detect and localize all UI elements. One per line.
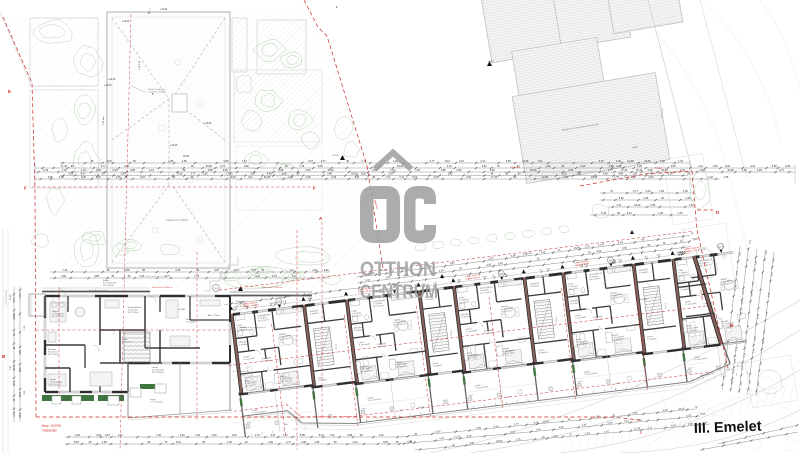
- svg-text:OTTHON: OTTHON: [360, 258, 436, 281]
- svg-text:6,07: 6,07: [511, 430, 517, 433]
- svg-text:17,43: 17,43: [61, 165, 68, 168]
- svg-text:3,11: 3,11: [617, 204, 622, 207]
- svg-text:2,00: 2,00: [433, 176, 438, 179]
- svg-text:33,60: 33,60: [206, 165, 213, 168]
- svg-text:33,60: 33,60: [678, 407, 685, 411]
- svg-text:3,11: 3,11: [538, 160, 543, 163]
- svg-text:+10,03: +10,03: [640, 299, 648, 301]
- svg-text:1,05: 1,05: [102, 441, 107, 444]
- svg-text:33,60: 33,60: [728, 169, 735, 172]
- svg-text:2,00: 2,00: [61, 275, 66, 278]
- svg-text:F: F: [313, 186, 316, 191]
- svg-text:2,35: 2,35: [113, 169, 118, 172]
- svg-text:6,10: 6,10: [140, 176, 145, 179]
- svg-text:12,38: 12,38: [627, 160, 634, 163]
- svg-text:1,40: 1,40: [658, 212, 663, 215]
- svg-text:2,77: 2,77: [608, 169, 613, 172]
- svg-text:6,10: 6,10: [96, 176, 101, 179]
- svg-text:5,26: 5,26: [619, 197, 624, 200]
- svg-text:Lépcső: Lépcső: [665, 303, 667, 309]
- svg-text:3,11: 3,11: [480, 160, 485, 163]
- svg-text:7,12: 7,12: [242, 160, 247, 163]
- svg-text:6,10: 6,10: [599, 160, 604, 163]
- svg-text:1,62: 1,62: [244, 165, 249, 168]
- svg-text:5: 5: [640, 431, 642, 435]
- svg-text:1,40: 1,40: [379, 434, 384, 437]
- svg-text:2,28: 2,28: [643, 197, 648, 200]
- svg-text:5,05: 5,05: [318, 165, 323, 168]
- svg-text:6,07: 6,07: [440, 437, 446, 440]
- svg-text:P: kerámia: P: kerámia: [122, 342, 132, 344]
- svg-text:+10,30: +10,30: [596, 356, 604, 358]
- svg-text:2,28: 2,28: [467, 435, 473, 438]
- svg-text:+12,33: +12,33: [108, 78, 116, 81]
- svg-text:1,50: 1,50: [689, 204, 694, 207]
- svg-text:33,60: 33,60: [496, 440, 503, 444]
- svg-text:+12,97: +12,97: [332, 155, 340, 157]
- svg-text:5,05: 5,05: [18, 413, 21, 418]
- svg-text:5,05: 5,05: [383, 441, 388, 444]
- svg-text:5,26: 5,26: [361, 173, 366, 176]
- svg-text:1,62: 1,62: [482, 165, 487, 168]
- svg-text:3,40: 3,40: [353, 441, 358, 444]
- svg-text:+10,30: +10,30: [418, 407, 426, 409]
- svg-text:1,50: 1,50: [563, 176, 568, 179]
- svg-text:1,75: 1,75: [255, 434, 260, 437]
- svg-text:2,00: 2,00: [649, 176, 654, 179]
- svg-text:1,05: 1,05: [723, 176, 728, 179]
- svg-text:CENTRUM: CENTRUM: [360, 282, 438, 303]
- svg-text:4,58: 4,58: [603, 173, 608, 176]
- svg-text:33,60: 33,60: [183, 155, 190, 158]
- svg-text:P: lam.parkett: P: lam.parkett: [52, 313, 65, 316]
- svg-text:2,28: 2,28: [686, 197, 691, 200]
- svg-text:1,75: 1,75: [677, 212, 682, 215]
- svg-text:2,77: 2,77: [165, 275, 170, 278]
- svg-text:6,10: 6,10: [601, 212, 606, 215]
- svg-text:2,90: 2,90: [124, 165, 129, 168]
- svg-text:Konyha/Étkező: Konyha/Étkező: [128, 306, 142, 309]
- svg-text:3,11: 3,11: [248, 176, 253, 179]
- svg-text:+12,61: +12,61: [160, 8, 168, 11]
- svg-text:6,07: 6,07: [105, 434, 110, 437]
- svg-text:1,50: 1,50: [683, 190, 688, 193]
- svg-text:3,40: 3,40: [212, 434, 217, 437]
- svg-text:7,12: 7,12: [330, 434, 335, 437]
- svg-text:1,30: 1,30: [195, 434, 200, 437]
- svg-text:4,02: 4,02: [660, 160, 665, 163]
- svg-text:1,62: 1,62: [448, 173, 453, 176]
- svg-text:P: csm.kerámia: P: csm.kerámia: [150, 401, 164, 404]
- svg-text:Palaht csatlakozóra: Palaht csatlakozóra: [148, 88, 166, 91]
- svg-text:4,10: 4,10: [459, 160, 464, 163]
- svg-text:3,45: 3,45: [282, 173, 287, 176]
- svg-text:4,58: 4,58: [609, 165, 614, 168]
- svg-text:WT: 2,80 m²: WT: 2,80 m²: [48, 353, 59, 356]
- svg-text:1,50: 1,50: [576, 173, 581, 176]
- svg-text:Lépcső: Lépcső: [556, 317, 558, 323]
- svg-text:E: E: [8, 89, 11, 94]
- svg-text:1,10: 1,10: [62, 169, 67, 172]
- svg-text:16,49: 16,49: [644, 160, 651, 163]
- svg-text:4,58: 4,58: [125, 269, 130, 272]
- svg-text:60: 60: [492, 275, 494, 277]
- svg-text:3,95: 3,95: [94, 275, 99, 278]
- svg-text:+7,96: +7,96: [700, 249, 706, 251]
- svg-text:16,49: 16,49: [530, 169, 537, 172]
- svg-text:2,35: 2,35: [182, 160, 187, 163]
- svg-text:1,40: 1,40: [637, 165, 642, 168]
- svg-text:1,10: 1,10: [18, 293, 21, 298]
- svg-text:33,60: 33,60: [12, 313, 15, 320]
- svg-text:3,37: 3,37: [686, 414, 692, 417]
- svg-text:2,28: 2,28: [616, 165, 621, 168]
- svg-text:2,00: 2,00: [435, 430, 441, 434]
- svg-text:3,95: 3,95: [18, 367, 21, 372]
- svg-text:1,10: 1,10: [447, 165, 452, 168]
- svg-text:16,49: 16,49: [591, 176, 598, 179]
- svg-text:4,02: 4,02: [75, 434, 80, 437]
- svg-text:2,28: 2,28: [700, 169, 705, 172]
- svg-text:3,45: 3,45: [48, 176, 53, 179]
- svg-text:20: 20: [645, 256, 647, 258]
- svg-text:1,05: 1,05: [659, 190, 664, 193]
- svg-text:2,77: 2,77: [220, 165, 225, 168]
- svg-text:+12,50: +12,50: [104, 84, 112, 87]
- svg-text:2,77: 2,77: [101, 165, 106, 168]
- svg-text:3,11: 3,11: [18, 350, 21, 355]
- svg-text:4,10: 4,10: [750, 165, 755, 168]
- svg-text:3,11: 3,11: [698, 165, 703, 168]
- svg-text:6,07: 6,07: [12, 412, 15, 417]
- svg-text:Hrsz.: 6173/9: Hrsz.: 6173/9: [42, 424, 61, 428]
- svg-text:12,38: 12,38: [542, 176, 549, 179]
- svg-text:Piros vonal: 75x20 cm: Piros vonal: 75x20 cm: [152, 286, 173, 289]
- svg-text:7,12: 7,12: [399, 176, 404, 179]
- svg-text:2,77: 2,77: [321, 160, 326, 163]
- svg-text:2,35: 2,35: [650, 204, 655, 207]
- svg-text:2,35: 2,35: [469, 442, 475, 445]
- svg-text:Piros vonal: 75x20 cm: Piros vonal: 75x20 cm: [262, 286, 283, 289]
- svg-text:3,11: 3,11: [637, 419, 643, 422]
- svg-text:5,26: 5,26: [74, 441, 79, 444]
- svg-text:4,58: 4,58: [671, 165, 676, 168]
- svg-text:4,58: 4,58: [130, 169, 135, 172]
- svg-text:4,58: 4,58: [618, 173, 623, 176]
- svg-text:16,49: 16,49: [12, 364, 15, 371]
- svg-text:P: kerámia: P: kerámia: [186, 322, 196, 324]
- svg-text:3,45: 3,45: [568, 169, 573, 172]
- svg-text:5,26: 5,26: [607, 421, 613, 424]
- svg-text:3,11: 3,11: [118, 434, 123, 437]
- svg-text:1,50: 1,50: [546, 165, 551, 168]
- svg-text:1,62: 1,62: [604, 430, 610, 433]
- svg-text:2,77: 2,77: [633, 190, 638, 193]
- svg-text:1,40: 1,40: [180, 434, 185, 437]
- svg-text:2,90: 2,90: [476, 426, 482, 430]
- svg-text:4,02: 4,02: [96, 434, 101, 437]
- svg-text:6,10: 6,10: [580, 165, 585, 168]
- svg-text:4,58: 4,58: [441, 169, 446, 172]
- svg-text:1,10: 1,10: [43, 169, 48, 172]
- svg-text:1,10: 1,10: [272, 275, 277, 278]
- svg-text:3,11: 3,11: [647, 426, 653, 429]
- svg-text:1,25 5,25: 1,25 5,25: [139, 60, 141, 70]
- svg-text:Félintenzív zöldtető: Félintenzív zöldtető: [166, 218, 189, 222]
- svg-text:Telekhatár: Telekhatár: [510, 166, 520, 169]
- svg-text:3,95: 3,95: [700, 412, 706, 415]
- svg-text:F: F: [24, 186, 27, 191]
- svg-text:6,07: 6,07: [308, 160, 313, 163]
- svg-text:2,28: 2,28: [305, 176, 310, 179]
- svg-text:3,37: 3,37: [255, 275, 260, 278]
- svg-text:2,28: 2,28: [785, 165, 790, 168]
- svg-text:+12,44: +12,44: [122, 20, 130, 23]
- svg-text:2,00: 2,00: [231, 176, 236, 179]
- svg-text:1,10: 1,10: [708, 176, 713, 179]
- svg-text:2,00: 2,00: [12, 297, 15, 302]
- svg-text:3,95: 3,95: [506, 160, 511, 163]
- svg-text:1,62: 1,62: [415, 169, 420, 172]
- svg-text:5,05: 5,05: [300, 434, 305, 437]
- svg-text:33,60: 33,60: [397, 165, 404, 168]
- svg-text:1,05: 1,05: [713, 165, 718, 168]
- svg-text:5,26: 5,26: [81, 176, 86, 179]
- svg-text:Lépcső: Lépcső: [335, 344, 337, 350]
- svg-text:6,07: 6,07: [271, 434, 276, 437]
- svg-text:2,00: 2,00: [68, 173, 73, 176]
- svg-text:2,28: 2,28: [175, 269, 180, 272]
- svg-text:7,12: 7,12: [385, 176, 390, 179]
- svg-text:Társasház: Társasház: [42, 429, 57, 433]
- svg-text:7,12: 7,12: [624, 420, 630, 423]
- svg-text:2,90: 2,90: [457, 169, 462, 172]
- svg-text:1,30: 1,30: [632, 411, 638, 415]
- svg-text:3,37: 3,37: [292, 275, 297, 278]
- svg-text:+12,03: +12,03: [204, 122, 212, 125]
- svg-text:WT: 5,82 m²: WT: 5,82 m²: [128, 311, 139, 314]
- svg-text:4,02: 4,02: [559, 426, 565, 429]
- svg-text:8,10: 8,10: [445, 160, 450, 163]
- svg-text:12,38: 12,38: [264, 176, 271, 179]
- svg-text:1,30: 1,30: [331, 176, 336, 179]
- svg-text:+10,44 Bört szél láve: +10,44 Bört szél láve: [88, 289, 108, 292]
- svg-text:3,37: 3,37: [214, 269, 219, 272]
- svg-text:6,10: 6,10: [176, 441, 181, 444]
- svg-text:2,90: 2,90: [301, 441, 306, 444]
- svg-text:1,30: 1,30: [725, 165, 730, 168]
- svg-text:2,90: 2,90: [324, 269, 329, 272]
- svg-text:2,28: 2,28: [757, 169, 762, 172]
- svg-text:7,12: 7,12: [62, 269, 67, 272]
- svg-text:4,02: 4,02: [466, 176, 471, 179]
- svg-text:4,58: 4,58: [208, 169, 213, 172]
- svg-text:6,10: 6,10: [553, 435, 559, 438]
- svg-text:7,12: 7,12: [299, 165, 304, 168]
- svg-text:75: 75: [539, 269, 541, 271]
- svg-text:árnyékoló szerkezet: árnyékoló szerkezet: [148, 91, 166, 94]
- svg-text:1,30: 1,30: [203, 173, 208, 176]
- svg-text:1,50: 1,50: [59, 176, 64, 179]
- svg-text:2,77: 2,77: [514, 423, 520, 427]
- svg-text:5,26: 5,26: [671, 424, 677, 427]
- svg-text:6,07: 6,07: [412, 176, 417, 179]
- svg-text:Lépcső: Lépcső: [451, 330, 453, 336]
- svg-text:3,11: 3,11: [289, 269, 294, 272]
- svg-text:1,62: 1,62: [536, 428, 542, 431]
- svg-text:5,05: 5,05: [107, 160, 112, 163]
- svg-text:2,35: 2,35: [116, 176, 121, 179]
- svg-text:5,05: 5,05: [224, 160, 229, 163]
- svg-text:3,11: 3,11: [355, 176, 360, 179]
- svg-text:WT: 10,50 m²: WT: 10,50 m²: [152, 371, 164, 374]
- svg-text:1,10: 1,10: [149, 169, 154, 172]
- svg-text:1,10: 1,10: [585, 432, 591, 435]
- svg-text:Tűzfal: Tűzfal: [655, 167, 662, 170]
- svg-text:1,75: 1,75: [614, 176, 619, 179]
- svg-text:2,90: 2,90: [306, 169, 311, 172]
- svg-text:1,30: 1,30: [678, 160, 683, 163]
- svg-text:20: 20: [504, 274, 506, 276]
- svg-text:4,10: 4,10: [139, 275, 144, 278]
- svg-text:1,10: 1,10: [288, 176, 293, 179]
- svg-text:WT: 12,9 m²: WT: 12,9 m²: [50, 383, 61, 386]
- svg-text:5,26: 5,26: [646, 190, 651, 193]
- svg-text:3,37: 3,37: [234, 269, 239, 272]
- svg-text:5,26: 5,26: [668, 173, 673, 176]
- svg-text:+0,87: +0,87: [632, 147, 638, 149]
- svg-text:6,10: 6,10: [493, 425, 499, 429]
- svg-text:WT: 4,76 m²: WT: 4,76 m²: [103, 284, 114, 287]
- svg-text:Bör.: 2,76 m: Bör.: 2,76 m: [208, 314, 220, 317]
- svg-text:1,75: 1,75: [516, 438, 522, 441]
- svg-text:8,10: 8,10: [627, 212, 632, 215]
- svg-text:2,77: 2,77: [779, 169, 784, 172]
- svg-text:2,77: 2,77: [286, 441, 291, 444]
- svg-text:3,37: 3,37: [663, 409, 669, 413]
- svg-text:1,05: 1,05: [227, 441, 232, 444]
- svg-text:3,37: 3,37: [582, 424, 588, 427]
- svg-text:4,58: 4,58: [347, 434, 352, 437]
- svg-text:1,40: 1,40: [156, 434, 161, 437]
- svg-text:Kisfaludy utca: Kisfaludy utca: [4, 290, 7, 306]
- svg-text:5,05: 5,05: [12, 381, 15, 386]
- svg-text:+10,03: +10,03: [525, 253, 533, 255]
- svg-text:1,05: 1,05: [314, 441, 319, 444]
- svg-text:8,10: 8,10: [319, 434, 324, 437]
- svg-text:1,40: 1,40: [232, 434, 237, 437]
- svg-text:1,40: 1,40: [742, 169, 747, 172]
- svg-text:WT: 18,21 m²: WT: 18,21 m²: [52, 315, 64, 318]
- svg-text:11,40: 11,40: [10, 294, 12, 300]
- svg-text:17,43: 17,43: [491, 176, 498, 179]
- svg-text:3,95: 3,95: [772, 165, 777, 168]
- svg-text:1,30: 1,30: [616, 160, 621, 163]
- svg-text:+10,46: +10,46: [170, 144, 178, 147]
- svg-text:17,43: 17,43: [454, 435, 461, 439]
- svg-text:2,77: 2,77: [430, 160, 435, 163]
- svg-text:12,38: 12,38: [522, 160, 529, 163]
- svg-text:2,90: 2,90: [268, 441, 273, 444]
- svg-text:1,62: 1,62: [18, 392, 21, 397]
- svg-text:8,10: 8,10: [178, 173, 183, 176]
- svg-text:P: lam.parkett: P: lam.parkett: [50, 381, 63, 384]
- svg-text:16,49: 16,49: [634, 204, 641, 207]
- svg-text:6,07: 6,07: [252, 269, 257, 272]
- svg-text:III. Emelet: III. Emelet: [694, 419, 762, 437]
- svg-text:+10,58: +10,58: [178, 309, 186, 311]
- svg-text:2,28: 2,28: [168, 160, 173, 163]
- svg-text:5,25 láve: 5,25 láve: [103, 115, 105, 125]
- svg-text:33,60: 33,60: [542, 420, 549, 424]
